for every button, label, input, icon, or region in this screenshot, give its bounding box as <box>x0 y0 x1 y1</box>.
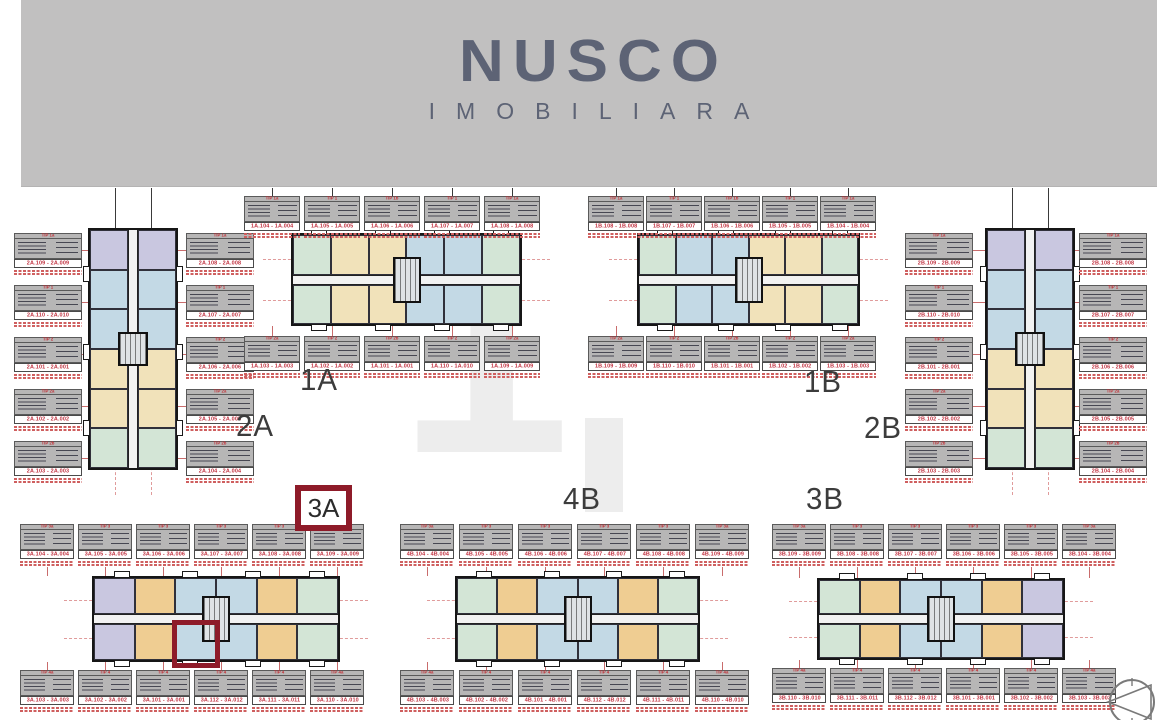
card-type-label: TIP 1a <box>831 197 864 200</box>
unit-range-label: 3B.104 - 3B.004 <box>1062 550 1116 559</box>
leader-line <box>272 326 273 336</box>
leader-line <box>973 406 985 407</box>
card-room-specs <box>772 674 826 694</box>
card-room-specs <box>1004 530 1058 550</box>
unit-cell-orange[interactable] <box>618 578 658 614</box>
leader-line <box>163 567 164 576</box>
unit-range-label: 2A.101 - 2A.001 <box>14 363 82 372</box>
unit-numbers-row <box>14 270 82 276</box>
elevator-core <box>393 257 421 303</box>
balcony-tab <box>1034 573 1050 580</box>
unit-info-card: TIP 43A.111 - 3A.011 <box>252 670 306 713</box>
balcony-tab <box>1034 658 1050 665</box>
card-type-label: TIP 3 <box>205 525 237 528</box>
unit-numbers-row <box>252 707 306 713</box>
dimension-tick <box>392 188 393 196</box>
building-1B-plan[interactable] <box>637 233 860 326</box>
unit-cell-green[interactable] <box>293 285 331 325</box>
unit-info-card: TIP 11B.105 - 1B.005 <box>762 196 818 239</box>
card-type-label: TIP 1 <box>200 286 241 289</box>
card-room-specs <box>636 530 690 550</box>
unit-range-label: 2B.104 - 2B.004 <box>1079 467 1147 476</box>
balcony-tab <box>980 344 987 360</box>
balcony-tab <box>980 420 987 436</box>
unit-cell-green[interactable] <box>819 580 860 614</box>
unit-range-text: 3A.103 - 3A.003 <box>27 698 68 703</box>
unit-range-label: 4B.104 - 4B.004 <box>400 550 454 559</box>
balcony-tab <box>718 324 734 331</box>
unit-info-card: TIP 1a1B.104 - 1B.004 <box>820 196 876 239</box>
unit-cell-orange[interactable] <box>497 578 537 614</box>
leader-line <box>47 567 48 576</box>
unit-numbers-row <box>772 705 826 711</box>
unit-cell-cream[interactable] <box>90 389 128 429</box>
unit-cell-lavender[interactable] <box>94 578 135 614</box>
unit-range-label: 1B.110 - 1B.010 <box>646 362 702 371</box>
unit-numbers-row <box>762 233 818 239</box>
building-1A-plan[interactable] <box>291 233 522 326</box>
unit-numbers-row <box>424 233 480 239</box>
card-type-label: TIP 1a <box>28 234 69 237</box>
unit-cell-orange[interactable] <box>135 624 176 660</box>
unit-range-text: 3A.107 - 3A.007 <box>201 552 242 557</box>
building-2A-plan[interactable] <box>88 228 178 470</box>
unit-range-text: 2B.108 - 2B.008 <box>1087 261 1138 266</box>
unit-range-label: 2A.107 - 2A.007 <box>186 311 254 320</box>
unit-cell-green[interactable] <box>297 578 338 614</box>
unit-numbers-row <box>364 233 420 239</box>
leader-line <box>674 326 675 336</box>
unit-range-label: 4B.110 - 4B.010 <box>695 696 749 705</box>
unit-info-card: TIP 44B.101 - 4B.001 <box>518 670 572 713</box>
card-type-label: TIP 4 <box>841 669 873 672</box>
dimension-tick <box>790 188 791 196</box>
unit-range-label: 3B.107 - 3B.007 <box>888 550 942 559</box>
unit-cell-green[interactable] <box>138 428 176 468</box>
dimension-tick <box>151 188 152 228</box>
card-room-specs <box>484 342 540 362</box>
card-type-label: TIP 2a <box>831 337 864 340</box>
unit-cell-lavender[interactable] <box>987 230 1025 270</box>
card-room-specs <box>1062 530 1116 550</box>
card-room-specs <box>304 202 360 222</box>
card-type-label: TIP 3a <box>1073 525 1105 528</box>
unit-cell-blue[interactable] <box>444 235 482 275</box>
card-room-specs <box>136 676 190 696</box>
card-type-label: TIP 1 <box>773 197 806 200</box>
unit-info-card: TIP 3a3B.109 - 3B.009 <box>772 524 826 567</box>
unit-cell-green[interactable] <box>639 235 676 275</box>
selected-building-label: 3A <box>308 493 340 524</box>
balcony-tab <box>375 324 391 331</box>
unit-cell-blue[interactable] <box>1035 270 1073 310</box>
unit-cell-green[interactable] <box>457 624 497 660</box>
unit-range-text: 1A.106 - 1A.006 <box>371 224 413 229</box>
selected-unit-outline <box>172 620 220 668</box>
unit-cell-cream[interactable] <box>138 389 176 429</box>
unit-range-text: 2A.102 - 2A.002 <box>22 417 73 422</box>
unit-range-text: 3B.101 - 3B.001 <box>953 696 994 701</box>
dimension-tick <box>1048 188 1049 228</box>
unit-cell-blue[interactable] <box>987 270 1025 310</box>
unit-range-label: 2A.110 - 2A.010 <box>14 311 82 320</box>
card-room-specs <box>820 202 876 222</box>
unit-numbers-row <box>905 374 973 380</box>
balcony-tab <box>83 266 90 282</box>
card-type-label: TIP 2 <box>435 337 468 340</box>
card-room-specs <box>1079 447 1147 467</box>
unit-range-label: 2B.109 - 2B.009 <box>905 259 973 268</box>
card-room-specs <box>588 342 644 362</box>
unit-numbers-row <box>518 707 572 713</box>
card-room-specs <box>946 530 1000 550</box>
card-room-specs <box>704 342 760 362</box>
unit-cell-blue[interactable] <box>676 235 713 275</box>
leader-line <box>973 458 985 459</box>
card-type-label: TIP 2b <box>200 442 241 445</box>
balcony-tab <box>245 571 261 578</box>
card-type-label: TIP 3 <box>263 525 295 528</box>
leader-line <box>604 567 605 576</box>
unit-cell-green[interactable] <box>90 428 128 468</box>
card-type-label: TIP 3 <box>957 525 989 528</box>
card-room-specs <box>186 447 254 467</box>
unit-range-text: 1B.104 - 1B.004 <box>827 224 869 229</box>
card-room-specs <box>186 239 254 259</box>
unit-info-card: TIP 4a4B.110 - 4B.010 <box>695 670 749 713</box>
leader-line <box>105 567 106 576</box>
unit-cell-cream[interactable] <box>1035 389 1073 429</box>
unit-info-card: TIP 33B.107 - 3B.007 <box>888 524 942 567</box>
unit-cell-green[interactable] <box>658 578 698 614</box>
unit-range-text: 1B.106 - 1B.006 <box>711 224 753 229</box>
balcony-tab <box>907 573 923 580</box>
unit-numbers-row <box>1079 426 1147 432</box>
unit-cell-green[interactable] <box>293 235 331 275</box>
unit-range-text: 2A.108 - 2A.008 <box>194 261 245 266</box>
unit-info-card: TIP 22A.101 - 2A.001 <box>14 337 82 380</box>
unit-cell-orange[interactable] <box>135 578 176 614</box>
card-room-specs <box>14 239 82 259</box>
card-type-label: TIP 1a <box>200 234 241 237</box>
unit-cell-blue[interactable] <box>138 270 176 310</box>
unit-info-card: TIP 12B.110 - 2B.010 <box>905 285 973 328</box>
unit-cell-orange[interactable] <box>497 624 537 660</box>
logo-title: NUSCO <box>450 28 728 95</box>
unit-info-card: TIP 3a4B.109 - 4B.009 <box>695 524 749 567</box>
unit-range-text: 4B.106 - 4B.006 <box>525 552 566 557</box>
unit-info-card: TIP 22B.101 - 2B.001 <box>905 337 973 380</box>
card-type-label: TIP 1a <box>599 197 632 200</box>
unit-info-card: TIP 34B.108 - 4B.008 <box>636 524 690 567</box>
unit-cell-lavender[interactable] <box>1022 580 1063 614</box>
leader-line <box>848 326 849 336</box>
unit-cell-green[interactable] <box>987 428 1025 468</box>
unit-cell-green[interactable] <box>482 285 520 325</box>
unit-cell-lavender[interactable] <box>90 230 128 270</box>
card-type-label: TIP 1a <box>919 234 960 237</box>
unit-cell-green[interactable] <box>457 578 497 614</box>
unit-cell-orange[interactable] <box>982 580 1023 614</box>
unit-info-card: TIP 43A.101 - 3A.001 <box>136 670 190 713</box>
unit-range-label: 1B.104 - 1B.004 <box>820 222 876 231</box>
building-4B-plan[interactable] <box>455 576 700 662</box>
unit-range-text: 2A.109 - 2A.009 <box>22 261 73 266</box>
balcony-tab <box>309 571 325 578</box>
unit-range-text: 3A.102 - 3A.002 <box>85 698 126 703</box>
balcony-tab <box>476 660 492 667</box>
building-2B-plan[interactable] <box>985 228 1075 470</box>
unit-numbers-row <box>186 322 254 328</box>
building-3B-plan[interactable] <box>817 578 1065 660</box>
leader-line <box>178 250 186 251</box>
unit-numbers-row <box>905 426 973 432</box>
unit-range-label: 3B.105 - 3B.005 <box>1004 550 1058 559</box>
card-room-specs <box>78 676 132 696</box>
card-room-specs <box>459 676 513 696</box>
unit-cell-blue[interactable] <box>90 270 128 310</box>
card-type-label: TIP 4 <box>89 671 121 674</box>
unit-info-card: TIP 43B.101 - 3B.001 <box>946 668 1000 711</box>
card-room-specs <box>577 530 631 550</box>
unit-range-text: 3A.101 - 3A.001 <box>143 698 184 703</box>
unit-numbers-row <box>946 705 1000 711</box>
unit-info-card: TIP 44B.102 - 4B.002 <box>459 670 513 713</box>
unit-range-label: 2A.104 - 2A.004 <box>186 467 254 476</box>
unit-numbers-row <box>136 561 190 567</box>
leader-line <box>973 250 985 251</box>
leader-line <box>512 326 513 336</box>
unit-numbers-row <box>1004 705 1058 711</box>
card-room-specs <box>424 202 480 222</box>
balcony-tab <box>839 573 855 580</box>
unit-range-label: 3A.102 - 3A.002 <box>78 696 132 705</box>
unit-cell-green[interactable] <box>639 285 676 325</box>
unit-cell-orange[interactable] <box>860 624 901 658</box>
unit-range-text: 3B.110 - 3B.010 <box>779 696 820 701</box>
unit-cell-green[interactable] <box>822 235 859 275</box>
card-type-label: TIP 4a <box>706 671 738 674</box>
unit-range-label: 2B.102 - 2B.002 <box>905 415 973 424</box>
balcony-tab <box>980 266 987 282</box>
unit-cell-green[interactable] <box>819 624 860 658</box>
balcony-tab <box>83 420 90 436</box>
card-type-label: TIP 1b <box>715 197 748 200</box>
unit-cell-orange[interactable] <box>982 624 1023 658</box>
card-type-label: TIP 2b <box>28 442 69 445</box>
card-type-label: TIP 2b <box>715 337 748 340</box>
unit-numbers-row <box>424 373 480 379</box>
card-room-specs <box>772 530 826 550</box>
site-plan-canvas: 1 NUSCO IMOBILIARA 3A TIP 1a2A.109 - 2A.… <box>0 0 1157 720</box>
unit-cell-lavender[interactable] <box>94 624 135 660</box>
unit-cell-cream[interactable] <box>331 285 369 325</box>
unit-range-label: 3A.105 - 3A.005 <box>78 550 132 559</box>
building-label-1B: 1B <box>804 364 842 400</box>
leader-line <box>279 567 280 576</box>
card-room-specs <box>1004 674 1058 694</box>
unit-numbers-row <box>905 270 973 276</box>
building-label-4B: 4B <box>563 481 601 517</box>
balcony-tab <box>839 658 855 665</box>
unit-range-label: 2A.108 - 2A.008 <box>186 259 254 268</box>
unit-info-card: TIP 4a3B.110 - 3B.010 <box>772 668 826 711</box>
card-type-label: TIP 3 <box>588 525 620 528</box>
card-room-specs <box>136 530 190 550</box>
unit-info-card: TIP 43B.102 - 3B.002 <box>1004 668 1058 711</box>
unit-info-card: TIP 2b2B.104 - 2B.004 <box>1079 441 1147 484</box>
balcony-tab <box>114 660 130 667</box>
unit-info-card: TIP 2b1A.101 - 1A.001 <box>364 336 420 379</box>
unit-range-label: 3A.108 - 3A.008 <box>252 550 306 559</box>
unit-range-label: 1A.105 - 1A.005 <box>304 222 360 231</box>
unit-range-label: 3B.102 - 3B.002 <box>1004 694 1058 703</box>
card-type-label: TIP 3a <box>783 525 815 528</box>
card-room-specs <box>244 202 300 222</box>
leader-line <box>221 567 222 576</box>
unit-range-text: 4B.104 - 4B.004 <box>407 552 448 557</box>
balcony-tab <box>606 571 622 578</box>
unit-numbers-row <box>518 561 572 567</box>
unit-range-label: 3B.110 - 3B.010 <box>772 694 826 703</box>
unit-numbers-row <box>484 233 540 239</box>
card-room-specs <box>310 530 364 550</box>
card-room-specs <box>400 676 454 696</box>
unit-range-label: 2B.110 - 2B.010 <box>905 311 973 320</box>
unit-cell-orange[interactable] <box>860 580 901 614</box>
unit-numbers-row <box>646 373 702 379</box>
unit-info-card: TIP 2a2B.105 - 2B.005 <box>1079 389 1147 432</box>
leader-line <box>857 660 858 668</box>
leader-line <box>178 406 186 407</box>
unit-info-card: TIP 2b2A.103 - 2A.003 <box>14 441 82 484</box>
unit-range-text: 1B.109 - 1B.009 <box>595 364 637 369</box>
unit-cell-lavender[interactable] <box>138 230 176 270</box>
unit-info-card: TIP 3a4B.104 - 4B.004 <box>400 524 454 567</box>
leader-line <box>722 662 723 670</box>
unit-range-text: 3B.102 - 3B.002 <box>1011 696 1052 701</box>
leader-line <box>663 662 664 670</box>
unit-info-card: TIP 33A.106 - 3A.006 <box>136 524 190 567</box>
unit-range-label: 1A.108 - 1A.008 <box>484 222 540 231</box>
leader-line <box>337 567 338 576</box>
unit-range-text: 3B.111 - 3B.011 <box>837 696 878 701</box>
unit-numbers-row <box>588 233 644 239</box>
unit-range-text: 3A.111 - 3A.011 <box>259 698 300 703</box>
card-type-label: TIP 4 <box>899 669 931 672</box>
unit-info-card: TIP 33B.106 - 3B.006 <box>946 524 1000 567</box>
card-type-label: TIP 1a <box>1093 234 1134 237</box>
unit-numbers-row <box>820 233 876 239</box>
unit-range-text: 4B.109 - 4B.009 <box>702 552 743 557</box>
card-type-label: TIP 4 <box>147 671 179 674</box>
unit-info-card: TIP 11A.107 - 1A.007 <box>424 196 480 239</box>
unit-info-card: TIP 2b2A.104 - 2A.004 <box>186 441 254 484</box>
unit-range-label: 3A.107 - 3A.007 <box>194 550 248 559</box>
unit-range-text: 3A.110 - 3A.010 <box>317 698 358 703</box>
balcony-tab <box>176 266 183 282</box>
unit-cell-blue[interactable] <box>676 285 713 325</box>
unit-info-card: TIP 4a4B.103 - 4B.003 <box>400 670 454 713</box>
balcony-tab <box>970 658 986 665</box>
unit-range-text: 4B.111 - 4B.011 <box>643 698 684 703</box>
unit-range-text: 4B.102 - 4B.002 <box>466 698 507 703</box>
unit-info-card: TIP 22B.106 - 2B.006 <box>1079 337 1147 380</box>
card-room-specs <box>588 202 644 222</box>
balcony-tab <box>434 324 450 331</box>
unit-range-text: 2B.102 - 2B.002 <box>913 417 964 422</box>
unit-numbers-row <box>905 322 973 328</box>
unit-range-text: 3B.108 - 3B.008 <box>837 552 878 557</box>
unit-range-label: 2A.109 - 2A.009 <box>14 259 82 268</box>
unit-range-label: 2B.106 - 2B.006 <box>1079 363 1147 372</box>
unit-range-label: 1A.107 - 1A.007 <box>424 222 480 231</box>
unit-cell-orange[interactable] <box>257 578 298 614</box>
unit-cell-cream[interactable] <box>785 235 822 275</box>
logo-subtitle: IMOBILIARA <box>21 98 1157 125</box>
card-room-specs <box>244 342 300 362</box>
leader-line <box>47 662 48 670</box>
unit-cell-orange[interactable] <box>618 624 658 660</box>
card-room-specs <box>762 342 818 362</box>
unit-cell-green[interactable] <box>658 624 698 660</box>
unit-cell-lavender[interactable] <box>1035 230 1073 270</box>
unit-range-label: 4B.105 - 4B.005 <box>459 550 513 559</box>
unit-info-card: TIP 44B.112 - 4B.012 <box>577 670 631 713</box>
leader-line <box>857 567 858 578</box>
unit-cell-green[interactable] <box>482 235 520 275</box>
unit-cell-green[interactable] <box>297 624 338 660</box>
card-type-label: TIP 2b <box>919 442 960 445</box>
unit-cell-green[interactable] <box>822 285 859 325</box>
unit-numbers-row <box>186 478 254 484</box>
unit-range-label: 4B.103 - 4B.003 <box>400 696 454 705</box>
unit-range-label: 1B.106 - 1B.006 <box>704 222 760 231</box>
unit-range-label: 3A.111 - 3A.011 <box>252 696 306 705</box>
unit-cell-lavender[interactable] <box>1022 624 1063 658</box>
balcony-tab <box>669 660 685 667</box>
unit-range-text: 1A.110 - 1A.010 <box>431 364 473 369</box>
unit-cell-blue[interactable] <box>444 285 482 325</box>
card-type-label: TIP 3 <box>841 525 873 528</box>
card-type-label: TIP 1 <box>315 197 348 200</box>
unit-numbers-row <box>400 561 454 567</box>
unit-range-text: 1B.105 - 1B.005 <box>769 224 811 229</box>
unit-range-text: 1A.105 - 1A.005 <box>311 224 353 229</box>
card-type-label: TIP 1a <box>255 197 288 200</box>
unit-info-card: TIP 43A.102 - 3A.002 <box>78 670 132 713</box>
unit-cell-green[interactable] <box>1035 428 1073 468</box>
unit-numbers-row <box>1079 322 1147 328</box>
unit-cell-cream[interactable] <box>987 389 1025 429</box>
unit-range-label: 3A.110 - 3A.010 <box>310 696 364 705</box>
card-type-label: TIP 3 <box>89 525 121 528</box>
leader-line <box>616 326 617 336</box>
leader-line <box>799 660 800 668</box>
unit-cell-cream[interactable] <box>785 285 822 325</box>
unit-range-text: 2A.110 - 2A.010 <box>22 313 73 318</box>
card-room-specs <box>194 676 248 696</box>
unit-cell-cream[interactable] <box>331 235 369 275</box>
unit-range-label: 2B.101 - 2B.001 <box>905 363 973 372</box>
unit-numbers-row <box>14 426 82 432</box>
card-type-label: TIP 2b <box>375 337 408 340</box>
balcony-tab <box>245 660 261 667</box>
card-room-specs <box>14 291 82 311</box>
card-type-label: TIP 4a <box>321 671 353 674</box>
dimension-tick <box>332 188 333 196</box>
unit-cell-orange[interactable] <box>257 624 298 660</box>
